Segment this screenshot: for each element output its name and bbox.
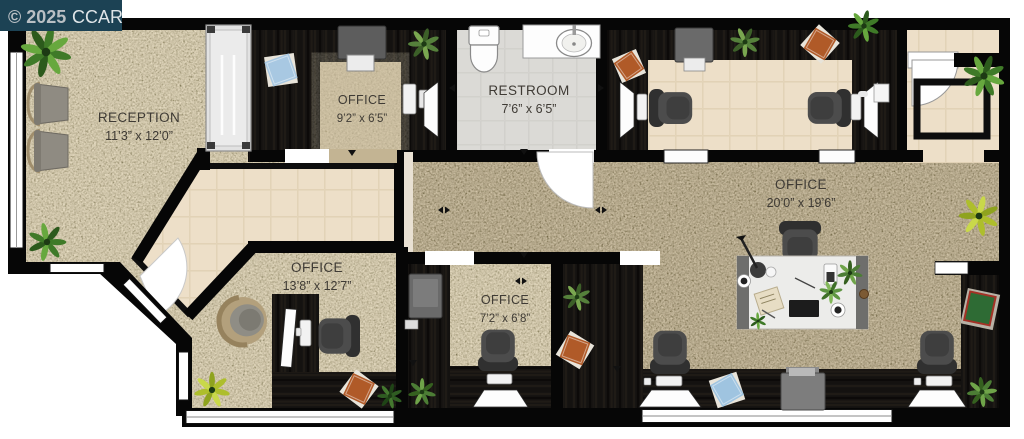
svg-text:RECEPTION: RECEPTION [98, 110, 180, 125]
svg-text:CCAR: CCAR [72, 7, 123, 27]
svg-text:20’0” x 19’6”: 20’0” x 19’6” [767, 196, 836, 210]
svg-text:OFFICE: OFFICE [481, 293, 529, 307]
svg-text:9’2” x 6’5”: 9’2” x 6’5” [337, 113, 388, 125]
svg-text:OFFICE: OFFICE [775, 177, 827, 192]
svg-text:7’2” x 6’8”: 7’2” x 6’8” [480, 313, 531, 325]
svg-text:13’8” x 12’7”: 13’8” x 12’7” [283, 279, 352, 293]
svg-text:OFFICE: OFFICE [338, 93, 386, 107]
svg-text:7’6” x 6’5”: 7’6” x 6’5” [502, 102, 557, 116]
svg-text:OFFICE: OFFICE [291, 260, 343, 275]
svg-text:RESTROOM: RESTROOM [488, 83, 569, 98]
svg-text:© 2025: © 2025 [8, 7, 66, 27]
svg-text:11’3” x 12’0”: 11’3” x 12’0” [105, 129, 173, 143]
